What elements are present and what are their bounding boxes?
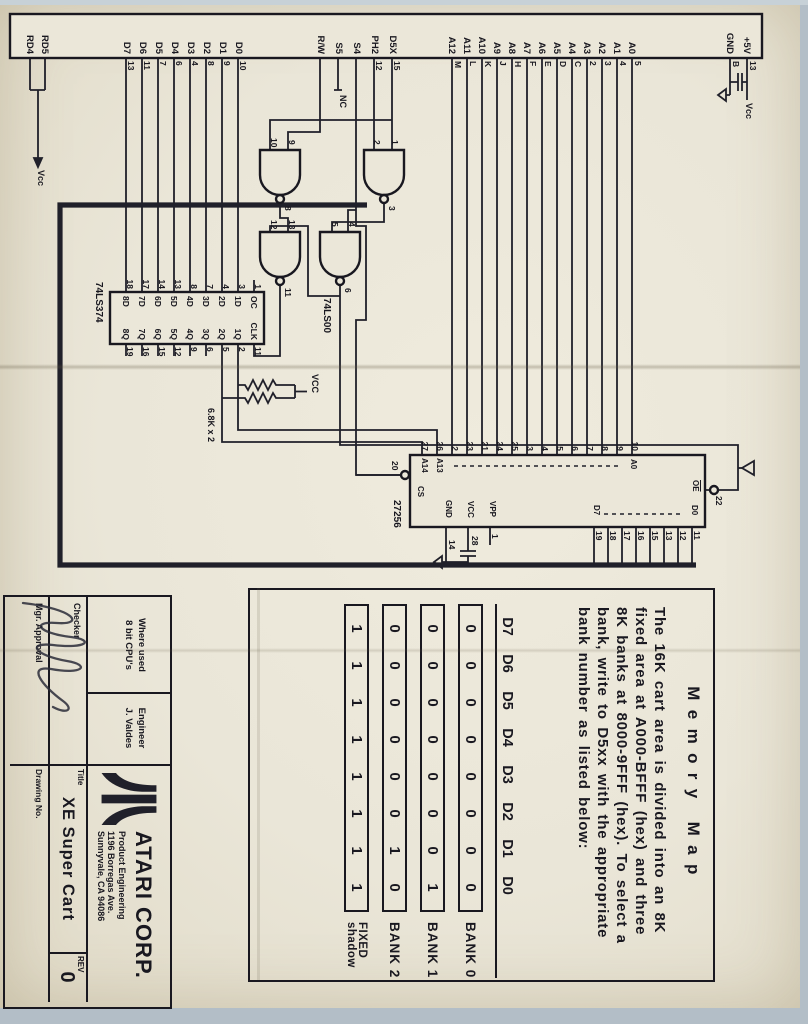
scanner-edge-strip (0, 0, 808, 5)
schematic-sheet: +5VGND 13B Vcc A0A1A2A3A4A5A6A7A8A9A10A1… (0, 0, 800, 1008)
rom-d0-label: D0 (690, 505, 699, 515)
rom-a14-label: A14 (420, 458, 429, 473)
bank1-row: 00000001 BANK 1 (420, 604, 445, 978)
gate1-out-pin: 3 (387, 206, 397, 211)
connector-rd-labels: RD5RD4 (23, 15, 53, 54)
rom-left-pins: 1098765432524212322627 (417, 434, 642, 451)
gates-part-label: 74LS00 (321, 298, 332, 333)
connector-address-labels: A0A1A2A3A4A5A6A7A8A9A10A11A12 (445, 15, 640, 54)
latch-right-labels: CLK1Q2Q3Q4Q5Q6Q7Q8Q (118, 320, 262, 340)
rom-cs-pin: 20 (390, 461, 400, 470)
engineer-cell: Engineer J. Valdes (122, 694, 148, 762)
gate1-in1-pin: 1 (390, 140, 400, 145)
gate3-in2-pin: 10 (269, 138, 279, 147)
latch-left-pins: 1347813141718 (122, 272, 266, 289)
rom-gnd-pin: 14 (447, 540, 457, 549)
latch-part-label: 74LS374 (93, 282, 104, 323)
gate2-in2-pin: 5 (330, 222, 340, 227)
gate4-in1-pin: 13 (287, 220, 297, 229)
gate4-in2-pin: 12 (269, 220, 279, 229)
gate4-out-pin: 11 (283, 288, 293, 297)
gate3-in1-pin: 9 (287, 140, 297, 145)
bank2-bits: 00000010 (382, 604, 407, 912)
rom-a0-label: A0 (629, 459, 638, 469)
memory-map-paragraph: The 16K cart area is divided into an 8K … (574, 607, 669, 963)
bank2-row: 00000010 BANK 2 (382, 604, 407, 978)
fixed-bits: 11111111 (344, 604, 369, 912)
where-used-cell: Where used 8 bit CPU's (122, 600, 148, 690)
bank2-label: BANK 2 (387, 922, 402, 978)
pullup-value-label: 6.8K x 2 (206, 408, 216, 442)
connector-control-labels: D5XPH2S4S5R/W (311, 15, 401, 54)
fixed-label: FIXED shadow (346, 922, 368, 968)
rom-gnd-label: GND (444, 500, 453, 518)
rom-oe-label: OE (691, 480, 700, 492)
handwritten-page-note: Pg. 3 of 3 8/25/87 (93, 896, 195, 1024)
connector-power-pins: 13B (727, 61, 761, 76)
gate2-in1-pin: 4 (347, 222, 357, 227)
rom-vcc-pin: 28 (470, 536, 480, 545)
rev-value: 0 (55, 953, 78, 1001)
drawing-no-label: Drawing No. (34, 769, 44, 819)
nc-label: NC (338, 95, 348, 108)
fold-crease (257, 588, 260, 980)
bank-select-table: D7D6D5D4D3D2D1D0 00000000 BANK 0 0000000… (331, 604, 517, 978)
gate3-out-pin: 8 (283, 206, 293, 211)
gate1-in2-pin: 2 (372, 140, 382, 145)
connector-control-pins: 1512 (316, 61, 406, 76)
bank0-row: 00000000 BANK 0 (458, 604, 483, 978)
bank1-label: BANK 1 (425, 922, 440, 978)
fixed-row: 11111111 FIXED shadow (344, 604, 369, 978)
rom-d7-label: D7 (592, 505, 601, 515)
connector-power-labels: +5VGND (722, 15, 756, 54)
connector-data-labels: D0D1D2D3D4D5D6D7 (118, 15, 246, 54)
rom-part-label: 27256 (391, 500, 402, 528)
bank0-bits: 00000000 (458, 604, 483, 912)
memory-map-title: Memory Map (683, 590, 703, 980)
memory-map-box: Memory Map The 16K cart area is divided … (248, 588, 715, 982)
bank-table-header: D7D6D5D4D3D2D1D0 (495, 604, 517, 978)
atari-fuji-logo-icon (98, 773, 160, 825)
latch-left-labels: OC1D2D3D4D5D6D7D8D (118, 296, 262, 316)
vcc-label-2: Vcc (36, 170, 46, 186)
title-label: Title (76, 769, 85, 785)
rom-cs-label: CS (416, 486, 425, 497)
vcc-label: Vcc (744, 103, 754, 119)
connector-data-pins: 10984671113 (123, 61, 251, 76)
rom-vcc-label: VCC (466, 501, 475, 518)
rom-vpp-label: VPP (488, 501, 497, 517)
drawing-title: XE Super Cart (58, 769, 77, 949)
signature (7, 595, 105, 745)
connector-address-pins: 5432CDEFHJKLM (450, 61, 645, 76)
rom-data-pins: 1112131516171819 (592, 531, 704, 546)
bank0-label: BANK 0 (463, 922, 478, 978)
rom-a13-label: A13 (435, 458, 444, 473)
rom-oe-pin: 22 (714, 496, 724, 505)
rom-vpp-pin: 1 (490, 534, 500, 539)
scanned-schematic-page: +5VGND 13B Vcc A0A1A2A3A4A5A6A7A8A9A10A1… (0, 0, 808, 1024)
bank1-bits: 00000001 (420, 604, 445, 912)
latch-right-pins: 11256912151619 (122, 347, 266, 364)
pullup-vcc-label: VCC (310, 374, 320, 393)
gate2-out-pin: 6 (343, 288, 353, 293)
